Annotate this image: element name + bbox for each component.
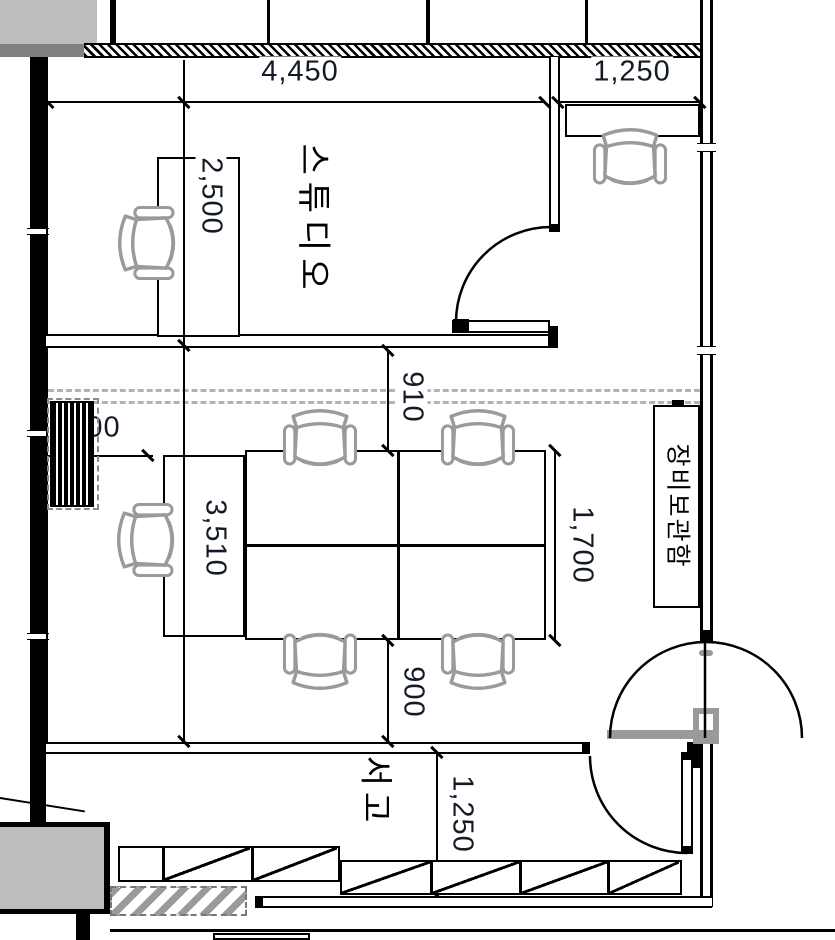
dim-studio-width: 4,450 — [259, 57, 341, 88]
office-chair — [120, 207, 174, 278]
office-chair — [594, 130, 665, 184]
dim-table-length: 1,700 — [567, 504, 598, 586]
symbols-overlay — [0, 0, 835, 940]
office-chair — [284, 634, 355, 688]
office-chair — [442, 411, 513, 465]
dim-studio-desk-depth: 2,500 — [196, 155, 227, 237]
office-chair — [284, 411, 355, 465]
door-arc-stack-room — [590, 756, 687, 853]
dim-stack-room-depth: 1,250 — [447, 773, 478, 855]
door-arc-studio — [456, 227, 551, 322]
dim-table-to-wall: 900 — [398, 664, 429, 719]
room-label-studio: 스튜디오 — [296, 143, 330, 296]
floor-plan-canvas: 장비보관함 900 4,450 1,250 2,500 910 3,510 1,… — [0, 0, 835, 940]
office-chair — [119, 504, 173, 575]
room-label-equipment-storage: 장비보관함 — [665, 443, 690, 568]
dim-right-bay-width: 1,250 — [591, 57, 673, 88]
room-label-stack-room: 서고 — [360, 756, 393, 829]
office-chair — [442, 634, 513, 688]
dim-meeting-room-depth: 3,510 — [200, 497, 231, 579]
dim-wall-to-table: 910 — [397, 369, 428, 424]
